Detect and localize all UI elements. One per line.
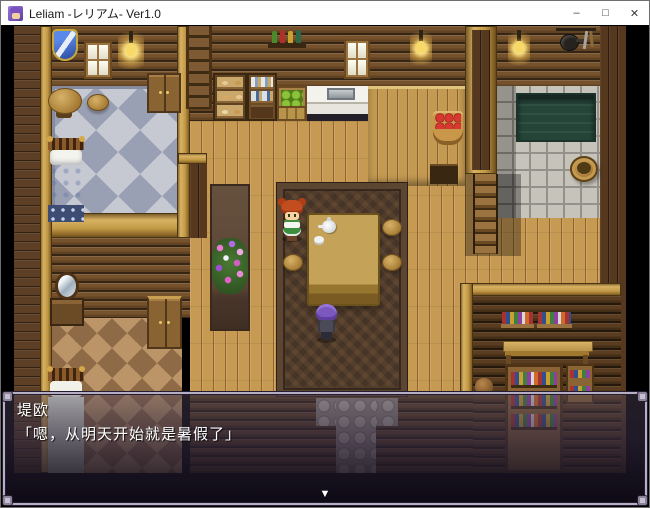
bottle-shelf [268,26,306,48]
maximize-icon[interactable]: □ [591,1,620,25]
bucket [570,156,598,182]
frame-corner [637,391,648,402]
jar-shelf [247,73,277,121]
staircase [473,174,498,254]
bath-water [516,93,596,142]
wall-book-shelf [501,312,534,338]
player-character [315,301,338,351]
teapot [322,220,336,233]
continue-arrow-icon: ▼ [320,489,331,500]
wall-lamp [508,29,530,65]
bedroom-corner-beam [178,153,207,164]
app-icon[interactable] [8,6,23,21]
study-top-beam [460,283,621,296]
stool [283,254,303,271]
wall-lamp [118,29,144,69]
green-apple-crate [277,86,307,121]
minimize-icon[interactable]: – [562,1,591,25]
flower-vase [212,238,248,294]
npc-girl [280,198,304,244]
stool [87,94,109,111]
stool [382,219,402,236]
close-icon[interactable]: ✕ [620,1,649,25]
bread-shelf [213,73,247,121]
bucket-inside [577,162,591,174]
teacup [314,236,324,243]
door [147,296,182,349]
door [147,73,181,113]
dialogue-box[interactable]: 堤欧 「嗯，从明天开始就是暑假了」 ▼ [3,392,647,505]
title-bar[interactable]: Leliam -レリアム- Ver1.0 – □ ✕ [1,1,649,25]
frame-corner [2,391,13,402]
wall-lamp [410,29,432,65]
mirror [55,272,79,300]
dining-table [307,213,380,306]
red-apples [435,113,461,129]
apple-basket [433,111,463,145]
app-window: Leliam -レリアム- Ver1.0 – □ ✕ [0,0,650,508]
sink [327,88,355,100]
hanging-pots [556,26,596,62]
game-viewport[interactable]: 堤欧 「嗯，从明天开始就是暑假了」 ▼ [1,25,649,508]
ladder [186,26,212,109]
study-desk [503,341,591,365]
island-drawer [430,164,458,184]
window-title: Leliam -レリアム- Ver1.0 [29,5,161,22]
wall-shield [52,29,78,61]
bed [48,138,84,222]
window [344,39,370,79]
kitchen-counter [307,86,368,121]
round-table [48,88,82,120]
dialogue-text: 「嗯，从明天开始就是暑假了」 [17,423,241,444]
wall-book-shelf [537,312,572,338]
speaker-name: 堤欧 [17,399,49,420]
bedroom-outer-wall [190,164,207,238]
flower-blossoms [212,238,248,294]
frame-corner [637,495,648,506]
center-pillar [465,26,497,174]
app-icon-face [12,13,20,19]
mirror-dresser [50,272,84,326]
window-controls: – □ ✕ [562,1,649,25]
window [84,41,112,79]
center-pillar-panel [472,30,490,170]
stool [382,254,402,271]
frame-corner [2,495,13,506]
